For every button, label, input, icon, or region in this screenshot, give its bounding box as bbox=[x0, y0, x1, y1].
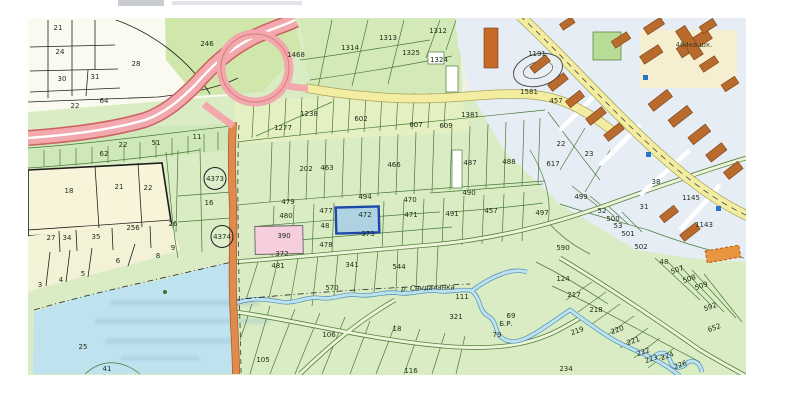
parcel-label: 21 bbox=[54, 24, 63, 32]
scan-artifacts bbox=[118, 0, 302, 6]
parcel-label: 617 bbox=[546, 160, 559, 168]
parcel-label: 16 bbox=[205, 199, 214, 207]
parcel-label: 35 bbox=[92, 233, 101, 241]
survey-mark-label: 4373 bbox=[206, 175, 224, 183]
parcel-label: 69 bbox=[507, 312, 516, 320]
parcel-label: 52 bbox=[598, 207, 607, 215]
map-page: 2124283031226424614681314131313121325132… bbox=[0, 0, 791, 400]
parcel-label: 372 bbox=[275, 250, 288, 258]
parcel-label: 26 bbox=[169, 220, 178, 228]
parcel-label: 246 bbox=[200, 40, 214, 48]
parcel-label: 41 bbox=[103, 365, 112, 373]
parcel-label: 202 bbox=[299, 165, 312, 173]
white-slot bbox=[452, 150, 462, 188]
parcel-label: 1191 bbox=[528, 50, 546, 58]
parcel-label: 30 bbox=[58, 75, 67, 83]
parcel-label: 1468 bbox=[287, 51, 305, 59]
parcel-label: 491 bbox=[445, 210, 458, 218]
parcel-label: 1324 bbox=[430, 56, 448, 64]
parcel-label: 480 bbox=[279, 212, 292, 220]
parcel-label: 25 bbox=[79, 343, 88, 351]
parcel-label: 321 bbox=[449, 313, 462, 321]
parcel-label: 234 bbox=[559, 365, 573, 373]
parcel-label: 24 bbox=[56, 48, 65, 56]
parcel-label: 124 bbox=[556, 275, 570, 283]
parcel-label: 590 bbox=[556, 244, 569, 252]
parcel-label: 494 bbox=[358, 193, 372, 201]
parcel-label: 457 bbox=[549, 97, 562, 105]
parcel-label: 487 bbox=[463, 159, 476, 167]
parcel-label: 1145 bbox=[682, 194, 700, 202]
parcel-label: 218 bbox=[589, 306, 602, 314]
parcel-label: 544 bbox=[392, 263, 406, 271]
parcel-label: 1325 bbox=[402, 49, 420, 57]
poi-marker bbox=[716, 206, 721, 211]
survey-mark-label: 4374 bbox=[213, 233, 231, 241]
building bbox=[484, 28, 498, 68]
parcel-label: 62 bbox=[100, 150, 109, 158]
parcel-label: 53 bbox=[614, 222, 623, 230]
parcel-label: 51 bbox=[152, 139, 161, 147]
parcel-label: 22 bbox=[144, 184, 153, 192]
parcel-label: 341 bbox=[345, 261, 358, 269]
parcel-label: 478 bbox=[319, 241, 332, 249]
parcel-label: 64 bbox=[100, 97, 109, 105]
ramp-east bbox=[288, 86, 308, 88]
parcel-label: 609 bbox=[439, 122, 452, 130]
parcel-label: 21 bbox=[115, 183, 124, 191]
parcel-label: 1238 bbox=[300, 110, 318, 118]
parcel-label: 472 bbox=[358, 211, 371, 219]
parcel-label: 602 bbox=[354, 115, 367, 123]
parcel-label: 570 bbox=[325, 284, 338, 292]
parcel-label: Б.Р. bbox=[499, 320, 512, 328]
poi-marker bbox=[646, 152, 651, 157]
parcel-label: 79 bbox=[493, 331, 502, 339]
white-slot bbox=[446, 66, 458, 92]
parcel-label: 390 bbox=[277, 232, 290, 240]
parcel-label: 28 bbox=[132, 60, 141, 68]
parcel-label: 5 bbox=[81, 270, 85, 278]
parcel-label: 1581 bbox=[520, 88, 538, 96]
parcel-label: 22 bbox=[71, 102, 80, 110]
parcel-label: 3 bbox=[38, 281, 42, 289]
parcel-label: 499 bbox=[574, 193, 587, 201]
parcel-label: 27 bbox=[47, 234, 56, 242]
parcel-label: 373 bbox=[361, 230, 374, 238]
parcel-label: 481 bbox=[271, 262, 284, 270]
parcel-label: 464кв.шк. bbox=[676, 41, 713, 49]
parcel-label: 488 bbox=[502, 158, 515, 166]
parcel-label: 8 bbox=[156, 252, 160, 260]
parcel-label: 457 bbox=[484, 207, 497, 215]
parcel-label: 22 bbox=[557, 140, 566, 148]
tree-symbol bbox=[163, 290, 167, 294]
parcel-label: 105 bbox=[256, 356, 269, 364]
map-canvas[interactable]: 2124283031226424614681314131313121325132… bbox=[0, 0, 791, 400]
parcel-label: 471 bbox=[404, 211, 417, 219]
parcel-label: 497 bbox=[535, 209, 548, 217]
parcel-label: 502 bbox=[634, 243, 647, 251]
parcel-label: 116 bbox=[404, 367, 418, 375]
parcel-label: 463 bbox=[320, 164, 333, 172]
parcel-label: 23 bbox=[585, 150, 594, 158]
parcel-label: 1143 bbox=[695, 221, 713, 229]
parcel-label: 477 bbox=[319, 207, 332, 215]
parcel-label: 4 bbox=[59, 276, 64, 284]
parcel-label: 31 bbox=[640, 203, 649, 211]
parcel-label: 466 bbox=[387, 161, 401, 169]
parcel-label: 501 bbox=[621, 230, 634, 238]
parcel-label: 48 bbox=[660, 258, 669, 266]
parcel-label: 9 bbox=[171, 244, 175, 252]
parcel-label: 1381 bbox=[461, 111, 479, 119]
parcel-label: 18 bbox=[65, 187, 74, 195]
parcel-label: 479 bbox=[281, 198, 294, 206]
parcel-label: 217 bbox=[567, 291, 580, 299]
poi-marker bbox=[643, 75, 648, 80]
parcel-label: 1313 bbox=[379, 34, 397, 42]
parcel-label: 607 bbox=[409, 121, 422, 129]
parcel-label: 256 bbox=[126, 224, 140, 232]
parcel-label: 38 bbox=[652, 178, 661, 186]
parcel-label: 18 bbox=[393, 325, 402, 333]
parcel-label: 6 bbox=[116, 257, 121, 265]
parcel-label: 31 bbox=[91, 73, 100, 81]
parcel-label: 1312 bbox=[429, 27, 447, 35]
parcel-label: 470 bbox=[403, 196, 416, 204]
parcel-label: 34 bbox=[63, 234, 72, 242]
parcel-label: 106 bbox=[322, 331, 336, 339]
parcel-label: 111 bbox=[455, 293, 468, 301]
parcel-label: 1277 bbox=[274, 124, 292, 132]
parcel-label: 48 bbox=[321, 222, 330, 230]
parcel-label: 490 bbox=[462, 189, 475, 197]
parcel-label: 11 bbox=[193, 133, 202, 141]
parcel-label: 1314 bbox=[341, 44, 359, 52]
parcel-label: 22 bbox=[119, 141, 128, 149]
